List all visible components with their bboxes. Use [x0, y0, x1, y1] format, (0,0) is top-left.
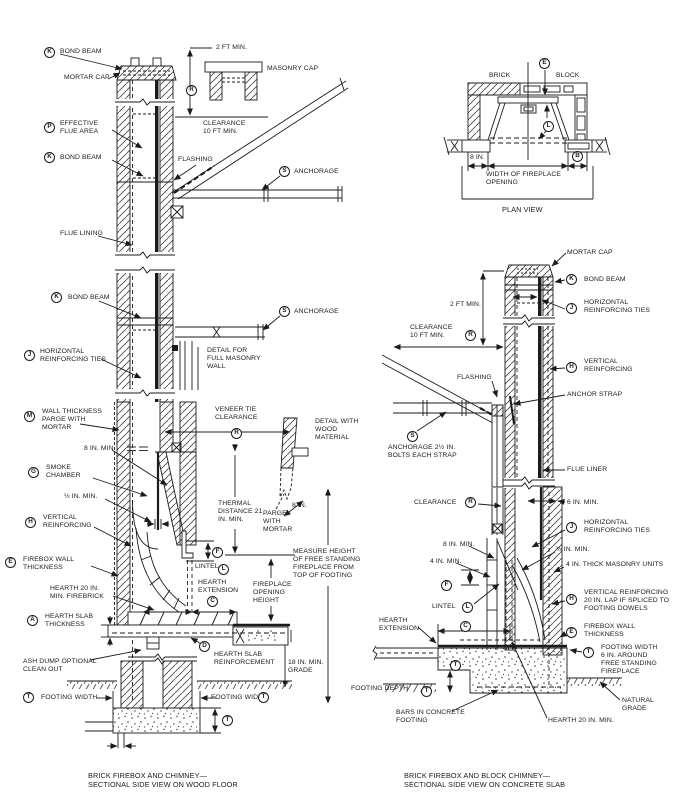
label-flashing: FLASHING: [178, 156, 213, 164]
technical-drawing-page: K R P K S K S J M R G H E F L C A D T T …: [0, 0, 686, 802]
callout-l: L: [462, 602, 473, 613]
label-vertical-reinforcing: VERTICAL REINFORCING: [43, 514, 92, 530]
label-anchor-strap: ANCHOR STRAP: [567, 391, 622, 399]
callout-t: T: [258, 692, 269, 703]
label-half-in-min: ½ IN. MIN.: [556, 546, 589, 554]
label-opening-height: FIREPLACE OPENING HEIGHT: [253, 581, 292, 605]
label-hearth-extension: HEARTH EXTENSION: [379, 617, 419, 633]
label-parge-mortar: PARGE WITH MORTAR: [263, 510, 292, 534]
callout-e: E: [539, 58, 550, 69]
label-smoke-chamber: SMOKE CHAMBER: [46, 464, 81, 480]
callout-s: S: [279, 166, 290, 177]
label-firebox-wall: FIREBOX WALL THICKNESS: [23, 556, 74, 572]
label-horizontal-ties: HORIZONTAL REINFORCING TIES: [40, 348, 106, 364]
label-8in-min: 8 IN. MIN.: [443, 541, 475, 549]
callout-l: L: [543, 121, 554, 132]
callout-p: P: [44, 122, 55, 133]
label-lintel: LINTEL: [432, 603, 456, 611]
label-8in-min: 8 IN. MIN.: [84, 445, 116, 453]
callout-d: D: [199, 641, 210, 652]
callout-t: T: [23, 692, 34, 703]
label-bond-beam: BOND BEAM: [584, 276, 626, 284]
callout-a: A: [27, 615, 38, 626]
label-vertical-lap: VERTICAL REINFORCING 20 IN. LAP IF SPLIC…: [584, 589, 669, 613]
callout-b: B: [572, 151, 583, 162]
callout-j: J: [566, 522, 577, 533]
label-hearth-20: HEARTH 20 IN. MIN. FIREBRICK: [50, 585, 104, 601]
label-clearance-10ft: CLEARANCE 10 FT MIN.: [410, 324, 452, 340]
callout-s: S: [407, 431, 418, 442]
caption-plan-view: PLAN VIEW: [502, 206, 543, 215]
caption-right-section: BRICK FIREBOX AND BLOCK CHIMNEY— SECTION…: [404, 772, 565, 789]
callout-e: E: [5, 557, 16, 568]
label-bond-beam: BOND BEAM: [68, 294, 110, 302]
label-flue-liner: FLUE LINER: [567, 466, 607, 474]
callout-h: H: [25, 517, 36, 528]
callout-h: H: [566, 594, 577, 605]
callout-r: R: [186, 85, 197, 96]
callout-k: K: [44, 152, 55, 163]
callout-l: L: [218, 564, 229, 575]
label-8in: 8 IN.: [292, 502, 307, 510]
callout-f: F: [441, 580, 452, 591]
label-measure-height: MEASURE HEIGHT OF FREE STANDING FIREPLAC…: [293, 548, 361, 580]
label-anchorage: ANCHORAGE: [294, 308, 339, 316]
label-wall-thickness: WALL THICKNESS PARGE WITH MORTAR: [42, 408, 102, 432]
callout-k: K: [51, 292, 62, 303]
label-half-in-min: ½ IN. MIN.: [64, 493, 97, 501]
label-4in-units: 4 IN. THICK MASONRY UNITS: [566, 561, 663, 569]
label-horizontal-ties: HORIZONTAL REINFORCING TIES: [584, 519, 650, 535]
callout-c: C: [207, 596, 218, 607]
callout-r: R: [465, 330, 476, 341]
callout-j: J: [24, 350, 35, 361]
label-firebox-wall: FIREBOX WALL THICKNESS: [584, 623, 635, 639]
callout-e: E: [566, 627, 577, 638]
label-clearance-10ft: CLEARANCE 10 FT MIN.: [203, 120, 245, 136]
label-mortar-cap: MORTAR CAP: [567, 249, 613, 257]
drawing-linework: [0, 0, 686, 802]
callout-r: R: [231, 428, 242, 439]
label-bond-beam: BOND BEAM: [60, 154, 102, 162]
label-ash-dump: ASH DUMP OPTIONAL CLEAN OUT: [23, 658, 97, 674]
callout-s: S: [279, 306, 290, 317]
callout-t: T: [450, 660, 461, 671]
label-2ft-min: 2 FT MIN.: [450, 301, 481, 309]
label-footing-width: FOOTING WIDTH: [41, 694, 97, 702]
label-masonry-cap: MASONRY CAP: [267, 65, 318, 73]
callout-t: T: [583, 647, 594, 658]
callout-f: F: [212, 547, 223, 558]
label-natural-grade: NATURAL GRADE: [622, 697, 654, 713]
label-flashing: FLASHING: [457, 374, 492, 382]
label-thermal-distance: THERMAL DISTANCE 21 IN. MIN.: [218, 500, 262, 524]
label-footing-width-6: FOOTING WIDTH 6 IN. AROUND FREE STANDING…: [601, 644, 657, 676]
label-width-opening: WIDTH OF FIREPLACE OPENING: [486, 171, 561, 187]
label-plan-8in: 8 IN.: [470, 154, 485, 162]
label-vertical-reinforcing: VERTICAL REINFORCING: [584, 358, 633, 374]
label-horizontal-ties: HORIZONTAL REINFORCING TIES: [584, 299, 650, 315]
label-brick: BRICK: [489, 72, 510, 80]
label-veneer-tie: VENEER TIE CLEARANCE: [215, 406, 257, 422]
caption-left-section: BRICK FIREBOX AND CHIMNEY— SECTIONAL SID…: [88, 772, 238, 789]
label-flue-lining: FLUE LINING: [60, 230, 103, 238]
label-anchorage: ANCHORAGE: [294, 168, 339, 176]
label-6in-min: 6 IN. MIN.: [567, 499, 599, 507]
label-hearth-20: HEARTH 20 IN. MIN.: [548, 717, 614, 725]
label-clearance: CLEARANCE: [414, 499, 456, 507]
label-bond-beam: BOND BEAM: [60, 48, 102, 56]
callout-r: R: [465, 497, 476, 508]
label-detail-wood: DETAIL WITH WOOD MATERIAL: [315, 418, 358, 442]
label-block: BLOCK: [556, 72, 580, 80]
callout-g: G: [28, 467, 39, 478]
callout-t: T: [421, 686, 432, 697]
callout-h: H: [566, 362, 577, 373]
label-2ft-min: 2 FT MIN.: [216, 44, 247, 52]
label-slab-thickness: HEARTH SLAB THICKNESS: [45, 613, 93, 629]
label-effective-flue-area: EFFECTIVE FLUE AREA: [60, 120, 98, 136]
callout-c: C: [460, 621, 471, 632]
callout-j: J: [566, 303, 577, 314]
label-slab-reinforcement: HEARTH SLAB REINFORCEMENT: [214, 651, 275, 667]
label-footing-depth: FOOTING DEPTH: [351, 685, 408, 693]
label-hearth-extension: HEARTH EXTENSION: [198, 579, 238, 595]
label-anchorage-bolts: ANCHORAGE 2½ IN. BOLTS EACH STRAP: [388, 444, 457, 460]
callout-t: T: [222, 715, 233, 726]
label-bars-concrete: BARS IN CONCRETE FOOTING: [396, 709, 465, 725]
label-18in-grade: 18 IN. MIN. GRADE: [288, 659, 323, 675]
label-4in-min: 4 IN. MIN.: [430, 558, 462, 566]
label-detail-full-masonry: DETAIL FOR FULL MASONRY WALL: [207, 347, 261, 371]
label-mortar-cap: MORTAR CAP: [64, 74, 110, 82]
label-lintel: LINTEL: [195, 563, 219, 571]
callout-m: M: [24, 411, 35, 422]
callout-k: K: [44, 47, 55, 58]
callout-k: K: [566, 274, 577, 285]
